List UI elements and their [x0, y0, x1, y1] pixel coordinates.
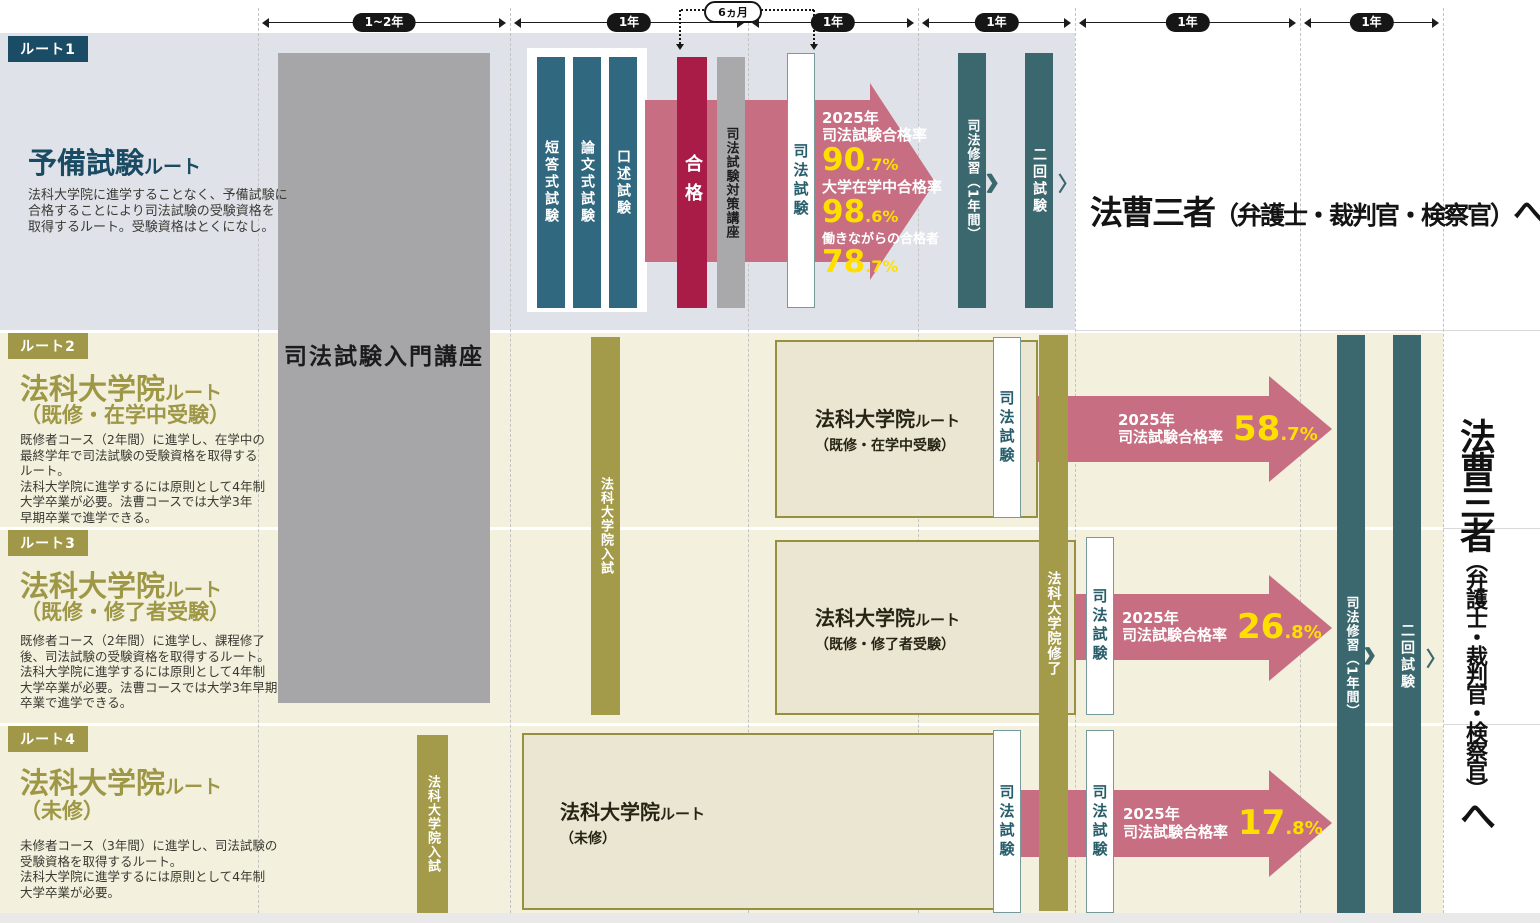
route2-arrow-stats: 2025年 司法試験合格率 58.7%: [1118, 396, 1318, 462]
route3-arrow-stats: 2025年 司法試験合格率 26.8%: [1122, 594, 1322, 660]
timeline-segment-5: 1年: [1079, 13, 1296, 33]
gridline: [510, 8, 511, 913]
timeline-label: 1年: [1165, 13, 1209, 32]
arrowhead-left-icon: [1304, 18, 1311, 28]
stat-value: 17.8%: [1238, 806, 1323, 841]
law-school-entrance-bar: 法科大学院入試: [591, 337, 620, 715]
timeline-label: 1年: [974, 13, 1018, 32]
box-title-sub: ルート: [660, 805, 705, 823]
goal-to: へ: [1454, 797, 1495, 830]
stat-big: 58: [1233, 409, 1280, 449]
route1-goal-heading: 法曹三者（弁護士・裁判官・検察官）へ: [1090, 186, 1540, 234]
route1-description: 法科大学院に進学することなく、予備試験に 合格することにより司法試験の受験資格を…: [28, 188, 288, 236]
bottom-margin-strip: [0, 913, 1540, 923]
law-school-entrance-bar-route4: 法科大学院入試: [417, 735, 448, 913]
stat-heading: 2025年 司法試験合格率: [1123, 806, 1228, 841]
route4-law-school-box: 法科大学院ルート （未修）: [522, 733, 998, 910]
stat-big: 17: [1238, 803, 1285, 843]
route2-title-paren: （既修・在学中受験）: [20, 399, 230, 429]
route4-tab: ルート4: [8, 726, 88, 752]
route1-tab: ルート1: [8, 36, 88, 62]
intro-course-label: 司法試験入門講座: [278, 337, 490, 371]
route2-description: 既修者コース（2年間）に進学し、在学中の 最終学年で司法試験の受験資格を取得する…: [20, 432, 265, 525]
chevron-icon: 〉: [1426, 643, 1446, 672]
stat-heading: 2025年 司法試験合格率: [1122, 610, 1227, 645]
bar-exam-bar-route4a: 司法試験: [993, 730, 1021, 913]
arrowhead-left-icon: [922, 18, 929, 28]
training-bar-shared: 司法修習（1年間）: [1337, 335, 1365, 913]
route3-law-school-box: 法科大学院ルート （既修・修了者受験）: [775, 540, 1076, 715]
law-school-completion-bar: 法科大学院修了: [1039, 335, 1068, 911]
intro-course-box: 司法試験入門講座: [278, 53, 490, 703]
bar-exam-bar-route3: 司法試験: [1086, 537, 1114, 715]
arrowhead-right-icon: [499, 18, 506, 28]
box-title-main: 法科大学院: [815, 606, 915, 630]
route3-tab: ルート3: [8, 530, 88, 556]
route4-title-sub: ルート: [165, 776, 222, 798]
bar-exam-bar-route1: 司法試験: [787, 53, 815, 308]
short-answer-exam-bar: 短答式試験: [537, 57, 565, 308]
flowchart-legal-career-routes: 1~2年 1年 1年 1年 1年 1年 6ヵ月 ルート1 予備試験ルー: [0, 0, 1540, 923]
goal-paren: （弁護士・裁判官・検察官）: [1462, 550, 1487, 797]
stat-heading: 2025年 司法試験合格率: [1118, 412, 1223, 447]
stat-value: 58.7%: [1233, 412, 1318, 447]
chevron-icon: 〉: [1058, 168, 1078, 197]
route3-description: 既修者コース（2年間）に進学し、課程修了 後、司法試験の受験資格を取得するルート…: [20, 633, 277, 711]
callout-leader-line: [758, 9, 814, 11]
route4-title-paren: （未修）: [20, 795, 104, 825]
arrowhead-left-icon: [1079, 18, 1086, 28]
route2-tab: ルート2: [8, 333, 88, 359]
arrowhead-down-icon: [676, 44, 684, 50]
bar-exam-prep-course-bar: 司法試験対策講座: [717, 57, 745, 308]
bar-exam-bar-route4b: 司法試験: [1086, 730, 1114, 913]
route3-title-paren: （既修・修了者受験）: [20, 596, 230, 626]
stat-frac: .8%: [1285, 818, 1322, 839]
bar-exam-bar-route2: 司法試験: [993, 337, 1021, 518]
stat-frac: .7%: [1280, 424, 1317, 445]
training-bar-route1: 司法修習（1年間）: [958, 53, 986, 308]
timeline-label: 1~2年: [353, 13, 416, 32]
stat-big: 78: [822, 244, 865, 280]
timeline-segment-4: 1年: [922, 13, 1071, 33]
second-exam-label: 二回試験: [1397, 623, 1417, 691]
stat-heading: 2025年 司法試験合格率: [822, 110, 942, 145]
timeline-label: 1年: [1349, 13, 1393, 32]
stat-frac: .8%: [1284, 622, 1321, 643]
box-title: 法科大学院ルート: [560, 796, 996, 825]
timeline-label: 1年: [811, 13, 855, 32]
goal-main: 法曹三者: [1454, 418, 1495, 550]
arrowhead-right-icon: [1289, 18, 1296, 28]
essay-exam-bar: 論文式試験: [573, 57, 601, 308]
stat-big: 98: [822, 194, 865, 230]
arrowhead-down-icon: [810, 44, 818, 50]
route4-description: 未修者コース（3年間）に進学し、司法試験の 受験資格を取得するルート。 法科大学…: [20, 838, 277, 900]
stat-frac: .7%: [865, 155, 898, 174]
chevrons-icon: 〉〉〉〉: [1364, 643, 1377, 669]
route1-title-sub: ルート: [144, 156, 201, 178]
timeline-segment-3: 1年: [752, 13, 914, 33]
shared-goal-heading-vertical: 法曹三者（弁護士・裁判官・検察官）へ: [1456, 418, 1492, 830]
stat-frac: .7%: [865, 257, 898, 276]
six-month-callout: 6ヵ月: [704, 1, 762, 23]
stat-value: 98.6%: [822, 197, 942, 229]
route1-stats: 2025年 司法試験合格率 90.7% 大学在学中合格率 98.6% 働きながら…: [822, 110, 942, 279]
arrowhead-left-icon: [514, 18, 521, 28]
goal-main: 法曹三者: [1090, 193, 1214, 232]
box-title-sub: ルート: [915, 611, 960, 629]
box-title-main: 法科大学院: [560, 800, 660, 824]
second-exam-bar-route1: 二回試験: [1025, 53, 1053, 308]
stat-value: 78.7%: [822, 247, 942, 279]
timeline-segment-6: 1年: [1304, 13, 1439, 33]
stat-frac: .6%: [865, 207, 898, 226]
arrowhead-right-icon: [1064, 18, 1071, 28]
timeline-label: 1年: [607, 13, 651, 32]
timeline-segment-1: 1~2年: [262, 13, 506, 33]
callout-leader-line: [813, 10, 815, 44]
route1-title-main: 予備試験: [28, 146, 144, 180]
box-title: 法科大学院ルート: [815, 602, 1074, 631]
callout-leader-line: [679, 10, 681, 44]
stat-big: 26: [1237, 607, 1284, 647]
stat-value: 26.8%: [1237, 610, 1322, 645]
box-paren: （既修・修了者受験）: [815, 634, 1074, 654]
route1-title: 予備試験ルート: [28, 140, 201, 182]
route4-arrow-stats: 2025年 司法試験合格率 17.8%: [1123, 790, 1323, 857]
gridline: [1443, 8, 1444, 913]
second-exam-bar-shared: 二回試験: [1393, 335, 1421, 913]
band-separator-line: [1075, 330, 1540, 331]
training-label: 司法修習（1年間）: [1342, 596, 1361, 718]
arrowhead-right-icon: [1432, 18, 1439, 28]
box-paren: （未修）: [560, 828, 996, 848]
chevrons-icon: 〉〉〉〉: [986, 168, 1000, 197]
arrowhead-left-icon: [262, 18, 269, 28]
box-title-main: 法科大学院: [815, 407, 915, 431]
oral-exam-bar: 口述試験: [609, 57, 637, 308]
callout-leader-line: [681, 9, 704, 11]
arrowhead-right-icon: [907, 18, 914, 28]
goal-to: へ: [1513, 193, 1540, 232]
box-title-sub: ルート: [915, 412, 960, 430]
pass-bar: 合格: [677, 57, 707, 308]
stat-big: 90: [822, 142, 865, 178]
goal-paren: （弁護士・裁判官・検察官）: [1214, 201, 1513, 230]
stat-value: 90.7%: [822, 145, 942, 177]
